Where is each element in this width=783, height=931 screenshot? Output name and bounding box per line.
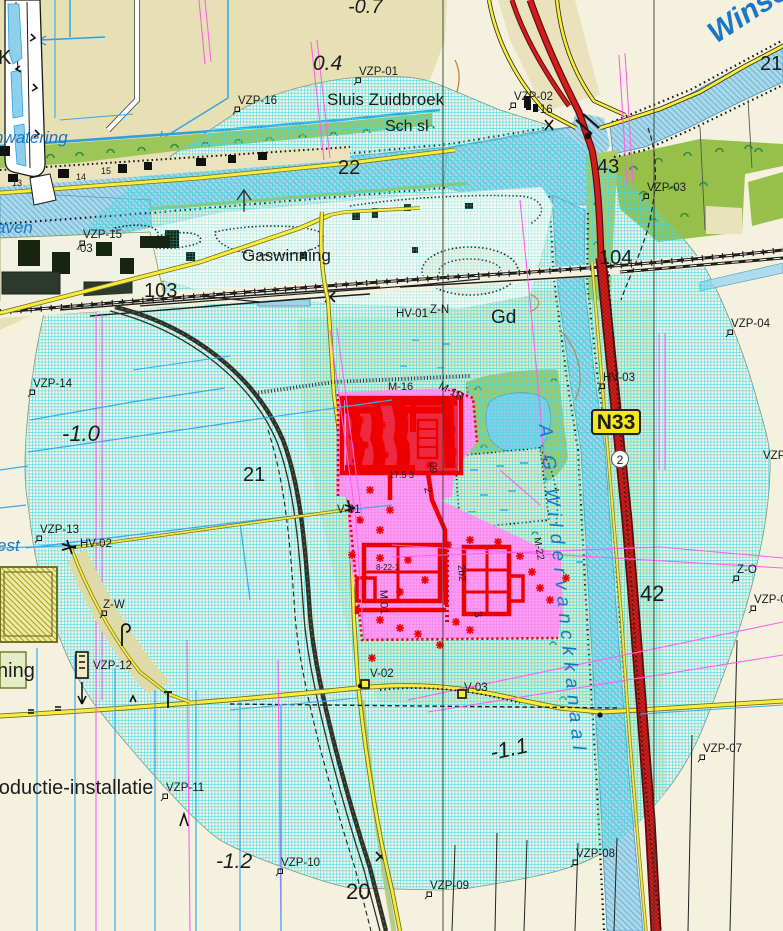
svg-text:20: 20 xyxy=(346,879,370,904)
svg-text:est: est xyxy=(0,536,21,555)
svg-text:103: 103 xyxy=(144,280,177,302)
svg-text:M 01: M 01 xyxy=(377,590,390,615)
svg-text:104: 104 xyxy=(599,247,632,269)
svg-text:N33: N33 xyxy=(597,411,636,434)
svg-text:K: K xyxy=(0,47,12,69)
svg-text:VZP-13: VZP-13 xyxy=(40,524,79,536)
svg-text:VZP-03: VZP-03 xyxy=(647,182,686,194)
svg-text:-03: -03 xyxy=(76,243,93,255)
svg-text:HV-02: HV-02 xyxy=(80,538,112,550)
svg-text:V-01: V-01 xyxy=(337,504,361,516)
svg-text:-16: -16 xyxy=(536,104,553,116)
svg-text:2b2: 2b2 xyxy=(455,564,467,582)
svg-text:VZP-07: VZP-07 xyxy=(703,743,742,755)
svg-text:Sluis Zuidbroek: Sluis Zuidbroek xyxy=(327,90,445,109)
svg-text:VZP-02: VZP-02 xyxy=(514,91,553,103)
svg-text:13: 13 xyxy=(12,178,22,188)
svg-text:VZP-11: VZP-11 xyxy=(166,782,204,794)
svg-text:Z-O: Z-O xyxy=(737,564,757,576)
svg-text:VZP-0: VZP-0 xyxy=(754,594,783,606)
svg-text:Z-W: Z-W xyxy=(103,599,125,611)
svg-text:HV-01: HV-01 xyxy=(396,308,428,320)
svg-text:VZP-10: VZP-10 xyxy=(281,857,320,869)
svg-text:VZP-15: VZP-15 xyxy=(83,229,122,241)
svg-text:22: 22 xyxy=(338,157,360,179)
svg-text:VZP-01: VZP-01 xyxy=(359,66,398,78)
svg-text:8-22-1: 8-22-1 xyxy=(376,563,400,572)
svg-text:-0.7: -0.7 xyxy=(348,0,383,18)
svg-text:15: 15 xyxy=(101,166,111,176)
svg-text:21: 21 xyxy=(760,53,782,75)
svg-text:Z-N: Z-N xyxy=(430,304,449,316)
svg-text:42: 42 xyxy=(640,581,664,606)
svg-text:43: 43 xyxy=(597,156,619,178)
svg-text:-1.2: -1.2 xyxy=(216,850,253,873)
svg-text:V-02: V-02 xyxy=(370,668,394,680)
svg-text:HV-03: HV-03 xyxy=(603,372,635,384)
svg-text:VZP-04: VZP-04 xyxy=(731,318,771,330)
svg-text:nwatering: nwatering xyxy=(0,128,68,147)
svg-text:09: 09 xyxy=(427,462,438,474)
svg-text:M-16: M-16 xyxy=(388,381,413,393)
svg-text:VZP-14: VZP-14 xyxy=(33,378,73,390)
svg-text:Gd: Gd xyxy=(491,307,516,328)
svg-text:VZP-08: VZP-08 xyxy=(576,848,615,860)
svg-text:0.4: 0.4 xyxy=(313,52,342,75)
svg-text:-1.0: -1.0 xyxy=(62,421,101,446)
svg-text:21: 21 xyxy=(243,464,265,486)
svg-text:VZP-16: VZP-16 xyxy=(238,95,277,107)
svg-text:VZP-09: VZP-09 xyxy=(430,880,469,892)
svg-text:17.5 3: 17.5 3 xyxy=(389,470,414,480)
svg-text:2: 2 xyxy=(617,453,624,467)
svg-text:ning: ning xyxy=(0,660,35,682)
svg-text:aven: aven xyxy=(0,218,33,237)
svg-text:14: 14 xyxy=(76,172,86,182)
svg-text:V-03: V-03 xyxy=(464,682,488,694)
svg-text:productie-installatie: productie-installatie xyxy=(0,777,153,799)
svg-text:Gaswinning: Gaswinning xyxy=(242,246,331,265)
svg-text:Sch sl: Sch sl xyxy=(385,118,429,135)
svg-text:VZP-12: VZP-12 xyxy=(93,660,132,672)
svg-text:VZP: VZP xyxy=(763,450,783,462)
